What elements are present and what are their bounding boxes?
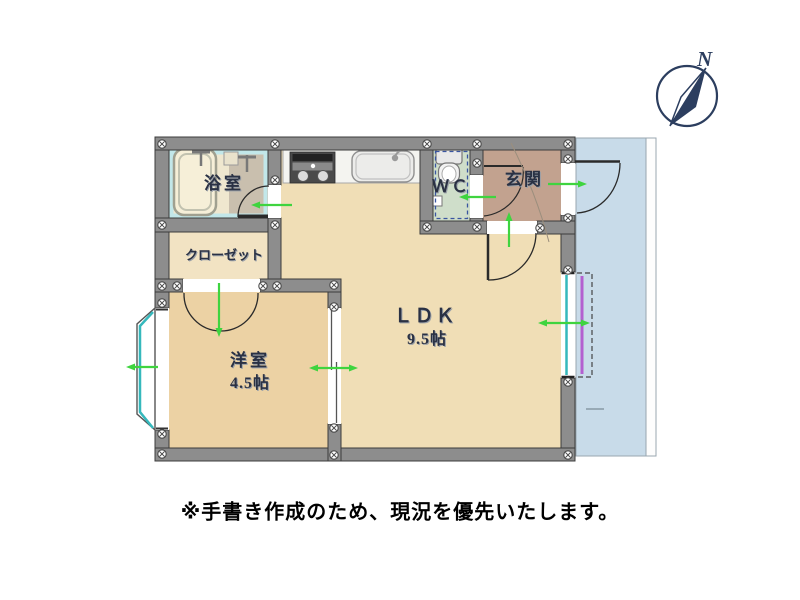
western-room-size: 4.5帖 [230,375,270,393]
western-room-label: 洋室 [230,351,270,371]
compass-icon [657,66,717,126]
balcony [576,138,656,456]
ldk-label: ＬＤＫ [393,306,456,328]
bathroom-label: 浴室 [204,174,244,194]
closet-label: クローゼット [185,249,263,264]
floor-plan-page: 浴室 ＷＣ 玄関 クローゼット 洋室 4.5帖 ＬＤＫ 9.5帖 N ※手書き作… [0,0,800,600]
stove-icon [290,152,335,183]
entrance-label: 玄関 [505,170,543,190]
wc-label: ＷＣ [432,177,470,197]
handwritten-disclaimer-note: ※手書き作成のため、現況を優先いたします。 [181,496,619,525]
kitchen-sink-icon [352,150,414,182]
compass-north-label: N [697,47,712,72]
ldk-size: 9.5帖 [407,331,447,349]
room-floors [169,150,561,448]
